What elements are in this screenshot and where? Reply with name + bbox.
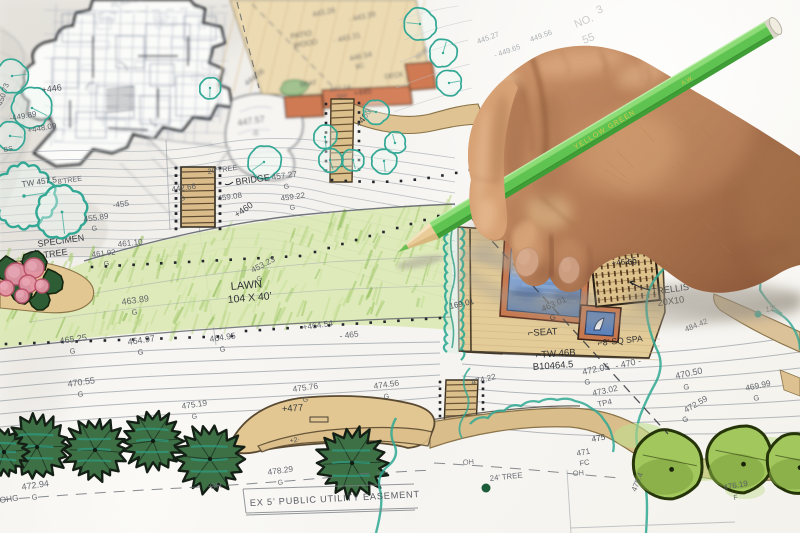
svg-text:G: G — [289, 204, 295, 212]
svg-text:G: G — [383, 393, 389, 401]
svg-text:G: G — [191, 413, 197, 421]
svg-text:G: G — [91, 225, 97, 233]
svg-text:OH: OH — [572, 468, 584, 478]
svg-text:+477: +477 — [281, 403, 303, 415]
svg-text:⌐SEAT: ⌐SEAT — [528, 326, 558, 339]
svg-text:+2·: +2· — [289, 437, 300, 445]
svg-text:G: G — [277, 479, 283, 487]
svg-text:G: G — [302, 396, 308, 404]
svg-text:OH: OH — [209, 481, 222, 491]
svg-text:G: G — [179, 195, 185, 203]
svg-text:OH: OH — [462, 457, 474, 467]
svg-text:-0: -0 — [251, 128, 259, 138]
svg-text:G: G — [283, 183, 289, 191]
svg-text:G: G — [103, 260, 109, 268]
